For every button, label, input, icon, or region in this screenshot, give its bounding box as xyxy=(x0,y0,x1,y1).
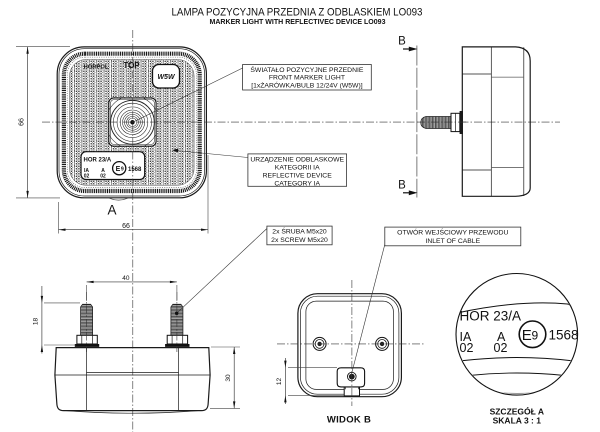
svg-text:FRONT MARKER LIGHT: FRONT MARKER LIGHT xyxy=(269,75,345,82)
svg-text:12: 12 xyxy=(276,378,283,386)
svg-text:9: 9 xyxy=(121,167,124,173)
svg-text:02: 02 xyxy=(494,341,508,355)
svg-text:A: A xyxy=(107,203,116,218)
svg-text:WIDOK B: WIDOK B xyxy=(327,415,371,426)
svg-text:02: 02 xyxy=(84,174,90,180)
svg-text:B: B xyxy=(398,180,406,192)
svg-text:TOP: TOP xyxy=(123,61,140,70)
svg-text:40: 40 xyxy=(122,275,130,282)
svg-text:1568: 1568 xyxy=(128,167,142,173)
svg-text:30: 30 xyxy=(225,374,232,382)
svg-text:9: 9 xyxy=(532,329,539,343)
svg-text:KATEGORII IA: KATEGORII IA xyxy=(275,164,320,171)
svg-text:LAMPA POZYCYJNA PRZEDNIA Z ODB: LAMPA POZYCYJNA PRZEDNIA Z ODBLASKIEM LO… xyxy=(172,7,423,19)
svg-text:HOR 23/A: HOR 23/A xyxy=(460,309,522,324)
svg-text:W5W: W5W xyxy=(157,74,176,81)
svg-text:[1xŻARÓWKA/BULB 12/24V (W5W)]: [1xŻARÓWKA/BULB 12/24V (W5W)] xyxy=(251,80,363,89)
svg-text:E: E xyxy=(522,327,532,344)
svg-text:INLET OF CABLE: INLET OF CABLE xyxy=(425,238,480,245)
svg-text:2x SCREW M5x20: 2x SCREW M5x20 xyxy=(271,237,328,244)
svg-text:02: 02 xyxy=(100,174,106,180)
svg-text:HOR 23/A: HOR 23/A xyxy=(84,157,112,163)
svg-text:ŚWIATAŁO POZYCYJNE PRZEDNIE: ŚWIATAŁO POZYCYJNE PRZEDNIE xyxy=(250,65,364,74)
svg-text:66: 66 xyxy=(122,223,130,230)
svg-text:OTWÓR WEJŚCIOWY PRZEWODU: OTWÓR WEJŚCIOWY PRZEWODU xyxy=(397,228,508,237)
svg-text:URZĄDZENIE ODBLASKOWE: URZĄDZENIE ODBLASKOWE xyxy=(250,156,344,163)
svg-text:2x ŚRUBA M5x20: 2x ŚRUBA M5x20 xyxy=(272,227,327,236)
svg-text:66: 66 xyxy=(19,118,26,126)
svg-text:1568: 1568 xyxy=(549,328,579,343)
svg-text:REFLECTIVE DEVICE: REFLECTIVE DEVICE xyxy=(263,172,333,179)
svg-text:18: 18 xyxy=(33,318,40,326)
svg-text:SKALA 3 : 1: SKALA 3 : 1 xyxy=(493,416,542,426)
svg-text:B: B xyxy=(398,35,406,47)
svg-text:02: 02 xyxy=(460,341,474,355)
svg-text:HORPOL: HORPOL xyxy=(84,65,109,71)
svg-text:MARKER LIGHT WITH REFLECTIVEC: MARKER LIGHT WITH REFLECTIVEC DEVICE LO0… xyxy=(210,19,386,26)
svg-text:CATEGORY IA: CATEGORY IA xyxy=(274,180,320,187)
